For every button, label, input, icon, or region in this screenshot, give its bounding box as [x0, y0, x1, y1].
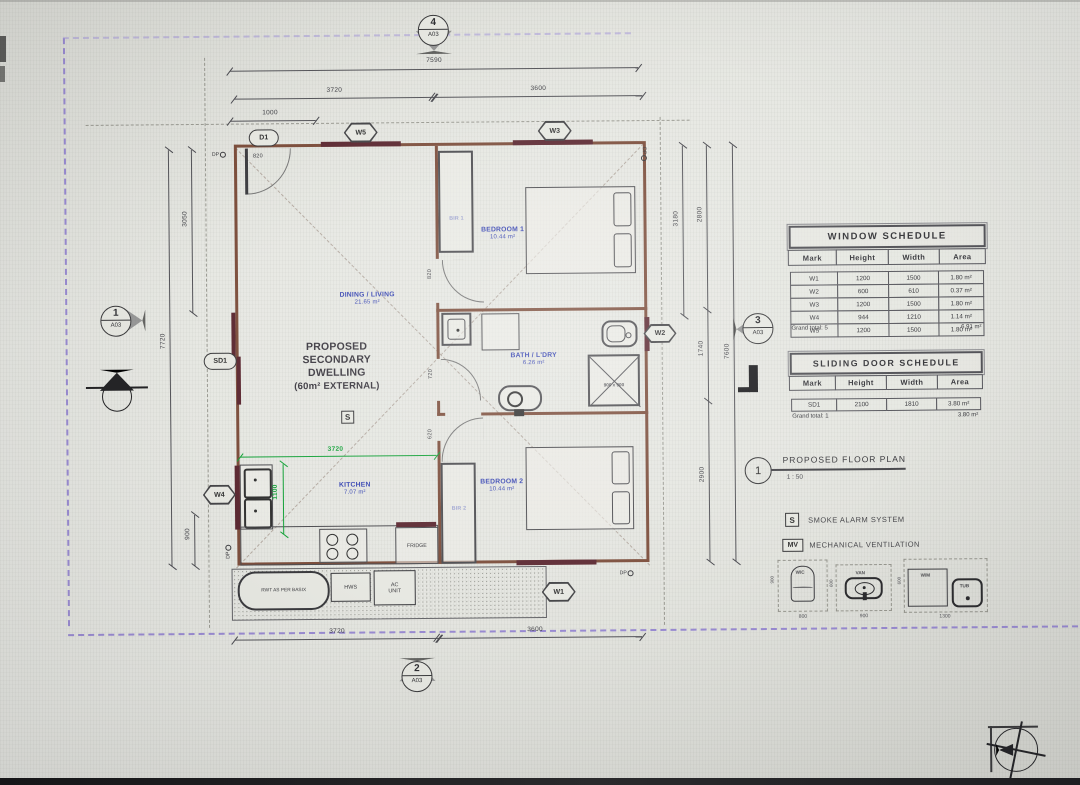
tub-label: TUB — [960, 583, 969, 588]
schedule-title-text: SLIDING DOOR SCHEDULE — [813, 357, 960, 368]
floor-plan-photo: 4 A03 7590 3720 3600 1000 7720 3050 900 … — [0, 0, 1080, 785]
photo-edge-mark — [0, 66, 5, 82]
pillow — [614, 233, 632, 267]
section-number: 4 — [430, 16, 436, 29]
tag-label: W1 — [553, 588, 564, 595]
col-header: Area — [939, 248, 986, 264]
door-width-label: 620 — [427, 429, 433, 439]
rainwater-tank: RWT AS PER BASIX — [238, 571, 330, 611]
toilet — [498, 385, 542, 411]
dim-label: 1000 — [243, 109, 298, 116]
drawing-sheet: 4 A03 7590 3720 3600 1000 7720 3050 900 … — [0, 0, 1080, 785]
dim-left-total — [168, 150, 173, 566]
room-name: KITCHEN — [307, 481, 403, 489]
cell-area: 3.80 m² — [936, 397, 981, 410]
tag-label: W2 — [655, 330, 666, 337]
dim-bottom-left — [235, 638, 439, 641]
dim-left-lower — [194, 515, 195, 566]
section-cut-symbol — [738, 387, 750, 392]
corner-line — [990, 726, 992, 772]
dim-left-upper — [191, 150, 193, 313]
robe-bir2 — [441, 463, 477, 564]
section-number: 2 — [414, 662, 420, 675]
kitchen-sink — [244, 498, 272, 528]
sink-drain — [254, 478, 257, 481]
ac-unit: AC UNIT — [374, 570, 416, 605]
burner — [346, 534, 358, 546]
tag-label: SD1 — [213, 358, 227, 365]
col-header: Area — [937, 374, 983, 389]
downpipe-marker: DP — [620, 570, 634, 576]
shower-size-label: 900 x 900 — [590, 382, 638, 387]
tag-label: D1 — [259, 134, 268, 141]
legend-symbol-letter: S — [789, 515, 794, 524]
grand-total-area: 6.91 m² — [961, 324, 981, 330]
legend-mv-symbol: MV — [782, 539, 803, 552]
bathtub — [601, 320, 637, 347]
dim-label: 3720 — [307, 628, 367, 636]
room-label-bath: BATH / L'DRY 6.26 m² — [486, 352, 582, 367]
section-sheet: A03 — [101, 320, 130, 331]
col-header: Width — [886, 375, 938, 390]
building-title: PROPOSED SECONDARY DWELLING (60m² EXTERN… — [273, 340, 401, 393]
building-title-line: PROPOSED — [273, 340, 401, 354]
callout-title: PROPOSED FLOOR PLAN — [783, 454, 906, 465]
dim-label: 3600 — [505, 626, 565, 634]
dim-label: 2900 — [699, 467, 706, 483]
bed-bedroom2 — [525, 446, 634, 530]
callout-number: 1 — [755, 465, 761, 477]
door-width-label: 720 — [428, 369, 434, 379]
dp-circle-icon — [225, 544, 231, 550]
dim-top-left — [234, 97, 434, 100]
cell-width: 1810 — [886, 398, 937, 411]
room-area: 21.65 m² — [319, 299, 415, 306]
door-width-label: 820 — [427, 269, 433, 279]
vanity-icon — [845, 577, 883, 599]
dim-label: 7590 — [404, 57, 464, 65]
dim-label: 1100 — [272, 484, 279, 499]
hws-label: HWS — [344, 584, 357, 590]
ac-label: UNIT — [388, 588, 401, 594]
room-area: 7.07 m² — [307, 489, 403, 496]
section-marker-1: 1 A03 — [100, 306, 131, 337]
dim-right-mid — [706, 146, 711, 562]
burner — [346, 548, 358, 560]
dim-label: 7600 — [724, 343, 731, 359]
col-header: Mark — [789, 375, 836, 390]
tag-door-d1: D1 — [249, 129, 279, 146]
downpipe-marker: DP — [212, 152, 226, 158]
site-boundary-bottom — [68, 625, 1078, 636]
section-sheet: A03 — [743, 327, 772, 338]
hot-water-system: HWS — [331, 572, 371, 601]
tag-window-w3: W3 — [538, 121, 572, 141]
legend-smoke-label: SMOKE ALARM SYSTEM — [808, 515, 905, 525]
section-cut-symbol — [749, 365, 758, 392]
dp-label: DP — [620, 570, 627, 576]
dp-label: DP — [641, 147, 647, 154]
north-point-icon — [100, 370, 134, 391]
dim-right-total — [732, 145, 737, 561]
door-schedule-header: Mark Height Width Area — [790, 375, 983, 391]
laundry-sink — [441, 313, 471, 346]
col-header: Mark — [788, 249, 837, 265]
wm-label: W/M — [921, 573, 930, 578]
dp-label: DP — [225, 551, 231, 558]
callout-number-circle: 1 — [745, 457, 772, 484]
wc-height-dim: 900 — [770, 576, 775, 584]
vanity-tap — [863, 592, 867, 600]
legend-mv-label: MECHANICAL VENTILATION — [809, 540, 920, 550]
dim-top-small — [231, 120, 316, 122]
window-w4 — [235, 466, 241, 530]
tub-inner — [606, 325, 625, 342]
callout-underline — [771, 468, 906, 471]
door-schedule-total: Grand total: 1 3.80 m² — [792, 412, 978, 420]
pillow — [613, 192, 631, 226]
window-schedule-title: WINDOW SCHEDULE — [789, 224, 986, 249]
callout-scale: 1 : 50 — [787, 474, 803, 481]
burner — [326, 534, 338, 546]
van-height-dim: 600 — [829, 579, 834, 587]
smoke-alarm-symbol: S — [341, 411, 354, 424]
building-title-line: SECONDARY — [273, 353, 401, 367]
grand-total-area: 3.80 m² — [958, 412, 978, 418]
dp-label: DP — [212, 152, 219, 158]
setback-line-left — [204, 58, 210, 628]
grand-total-label: Grand total: 5 — [791, 325, 827, 331]
room-label-kitchen: KITCHEN 7.07 m² — [307, 481, 403, 496]
bench — [481, 313, 519, 350]
photo-edge-mark — [0, 36, 6, 62]
room-name: BATH / L'DRY — [486, 352, 582, 360]
col-header: Height — [836, 249, 889, 265]
fridge-label: FRIDGE — [407, 542, 427, 548]
section-sheet: A03 — [419, 29, 448, 40]
photo-bottom-edge — [0, 778, 1080, 785]
toilet-bowl — [507, 391, 523, 407]
tag-label: W3 — [549, 127, 560, 134]
tank-label: RWT AS PER BASIX — [261, 588, 306, 593]
sliding-door-sd1 — [237, 357, 241, 405]
dim-label: 3600 — [508, 85, 568, 93]
survey-corner-symbol — [984, 720, 1046, 777]
laundry-width-dim: 1300 — [927, 613, 963, 619]
survey-arrow — [996, 744, 1013, 756]
robe-bir1 — [438, 151, 474, 253]
smoke-alarm-letter: S — [345, 413, 350, 422]
legend-symbol-letter: MV — [788, 542, 799, 549]
tag-label: W4 — [214, 491, 225, 498]
dp-circle-icon — [628, 570, 634, 576]
section-marker-3: 3 A03 — [742, 313, 773, 344]
dim-label: 3050 — [181, 211, 188, 227]
tag-sliding-door-sd1: SD1 — [204, 353, 237, 370]
van-width-dim: 900 — [849, 613, 879, 619]
section-marker-4: 4 A03 — [418, 15, 449, 46]
site-boundary-left — [63, 38, 70, 626]
section-number: 3 — [755, 314, 761, 327]
entry-door-leaf — [245, 149, 248, 195]
pillow — [612, 491, 630, 524]
dim-label: 900 — [184, 528, 191, 540]
wc-width-dim: 800 — [788, 614, 818, 620]
laundry-height-dim: 600 — [897, 577, 902, 585]
photo-top-edge — [0, 0, 1080, 2]
fridge: FRIDGE — [395, 527, 438, 564]
tub-drain — [966, 596, 970, 600]
legend-smoke-symbol: S — [785, 513, 799, 527]
dim-label: 3180 — [672, 211, 679, 227]
internal-wall — [437, 413, 445, 416]
setback-line-top — [86, 120, 690, 126]
dim-label: 3720 — [300, 445, 370, 453]
col-header: Width — [888, 249, 940, 265]
tag-window-w5: W5 — [344, 122, 378, 142]
section-sheet: A03 — [402, 675, 431, 686]
downpipe-marker: DP — [225, 544, 231, 558]
dp-circle-icon — [641, 155, 647, 161]
section-marker-2: 2 A03 — [401, 661, 432, 692]
section-number: 1 — [113, 307, 119, 320]
door-schedule-body: SD1210018103.80 m² — [792, 398, 981, 412]
vanity-drain — [863, 586, 866, 589]
dim-top-total — [230, 67, 638, 72]
dim-label: 2800 — [696, 207, 703, 223]
setback-line-right — [660, 117, 665, 625]
building-title-line: DWELLING — [273, 366, 401, 380]
shower: 900 x 900 — [588, 354, 640, 406]
downpipe-marker: DP — [641, 147, 647, 161]
room-name: DINING / LIVING — [319, 291, 415, 299]
sliding-door-sd1 — [231, 313, 235, 359]
kitchen-counter-left — [240, 464, 274, 529]
tag-label: W5 — [355, 129, 366, 136]
building-title-line: (60m² EXTERNAL) — [273, 379, 401, 393]
dim-bottom-right — [439, 636, 642, 639]
schedule-title-text: WINDOW SCHEDULE — [828, 230, 947, 242]
pillow — [612, 451, 630, 484]
toilet-base — [514, 409, 524, 416]
grand-total-label: Grand total: 1 — [792, 413, 828, 419]
dim-label: 3720 — [304, 87, 364, 95]
cooktop — [319, 529, 367, 563]
cell-mark: SD1 — [791, 398, 837, 411]
van-label: VAN — [856, 570, 865, 575]
sink-drain — [456, 329, 459, 332]
dp-circle-icon — [220, 152, 226, 158]
room-label-dining: DINING / LIVING 21.65 m² — [319, 291, 415, 306]
burner — [326, 548, 338, 560]
cell-height: 2100 — [836, 398, 887, 411]
kitchen-sink — [244, 468, 272, 498]
bed-bedroom1 — [525, 186, 636, 274]
wc-label: W/C — [796, 570, 805, 575]
dim-top-right — [434, 95, 642, 98]
window-w1 — [516, 560, 596, 566]
wc-seat-line — [793, 587, 813, 589]
tub-drain — [625, 332, 631, 338]
dim-label: 7720 — [159, 333, 166, 349]
dim-right-inner — [682, 146, 684, 316]
room-area: 6.26 m² — [486, 360, 582, 367]
sink-drain — [254, 509, 257, 512]
dim-label: 1740 — [698, 341, 705, 357]
col-header: Height — [835, 375, 887, 390]
site-boundary-top — [63, 32, 631, 39]
window-schedule-header: Mark Height Width Area — [789, 249, 986, 266]
door-schedule-title: SLIDING DOOR SCHEDULE — [790, 351, 983, 375]
